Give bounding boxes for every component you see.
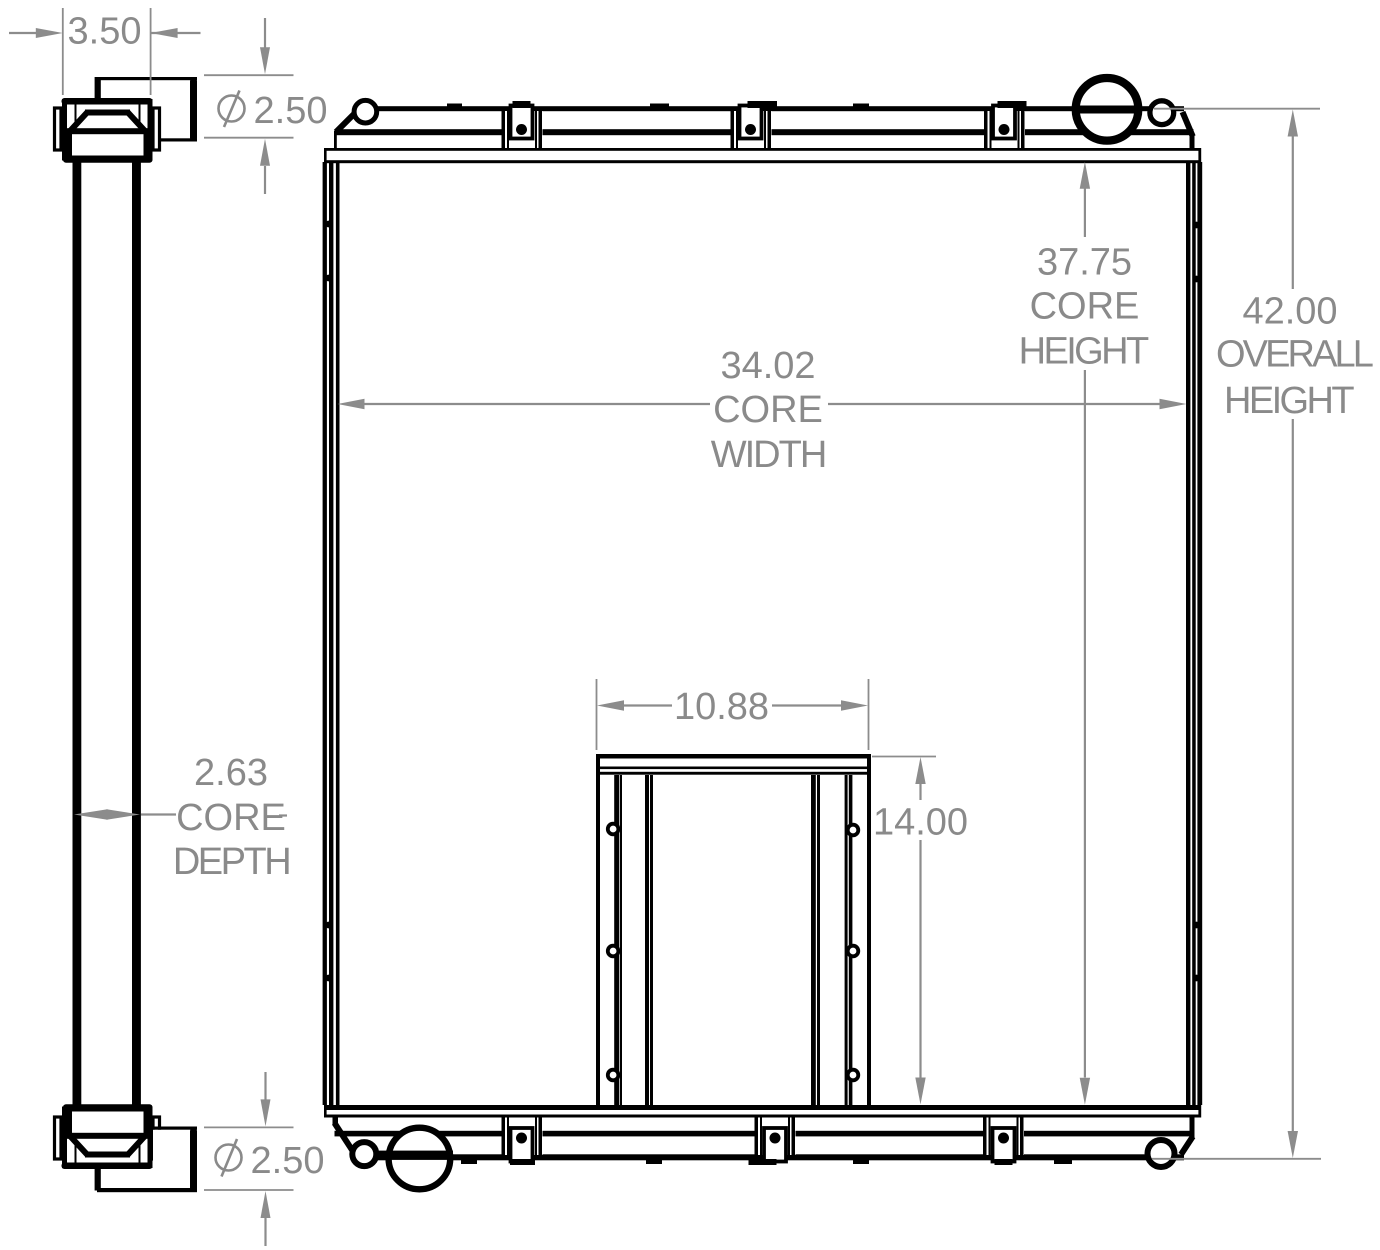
svg-text:HEIGHT: HEIGHT bbox=[1019, 331, 1149, 373]
svg-text:WIDTH: WIDTH bbox=[711, 434, 826, 476]
svg-text:OVERALL: OVERALL bbox=[1216, 333, 1373, 375]
svg-text:2.63: 2.63 bbox=[194, 752, 268, 794]
svg-text:2.50: 2.50 bbox=[251, 1140, 325, 1182]
svg-text:10.88: 10.88 bbox=[674, 686, 769, 728]
svg-text:2.50: 2.50 bbox=[254, 90, 328, 132]
svg-text:37.75: 37.75 bbox=[1037, 242, 1132, 284]
svg-text:14.00: 14.00 bbox=[873, 802, 968, 844]
svg-text:34.02: 34.02 bbox=[720, 345, 815, 387]
svg-text:CORE: CORE bbox=[176, 797, 286, 839]
svg-text:DEPTH: DEPTH bbox=[173, 841, 289, 883]
svg-text:42.00: 42.00 bbox=[1242, 291, 1337, 333]
svg-text:HEIGHT: HEIGHT bbox=[1224, 380, 1354, 422]
svg-text:3.50: 3.50 bbox=[68, 11, 142, 53]
svg-text:CORE: CORE bbox=[1030, 286, 1140, 328]
svg-text:CORE: CORE bbox=[713, 389, 823, 431]
